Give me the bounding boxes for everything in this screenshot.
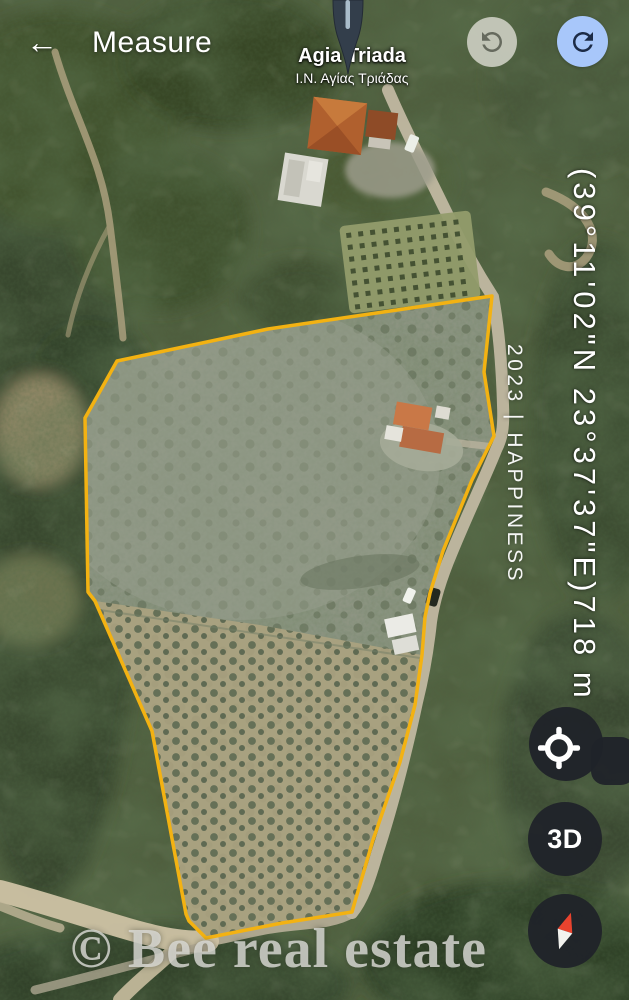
my-location-icon bbox=[537, 726, 581, 770]
vineyard bbox=[339, 210, 481, 313]
undo-button[interactable] bbox=[467, 17, 517, 67]
my-location-button[interactable] bbox=[529, 707, 603, 781]
back-arrow-icon: ← bbox=[26, 24, 58, 60]
redo-icon bbox=[568, 27, 598, 57]
undo-icon bbox=[477, 27, 507, 57]
page-title: Measure bbox=[92, 26, 212, 60]
measure-screen: ← Measure Agia Triada Ι.Ν. Αγίας Τριάδας… bbox=[0, 0, 629, 1000]
redo-button[interactable] bbox=[557, 16, 608, 67]
3d-label: 3D bbox=[547, 824, 583, 855]
back-button[interactable]: ← bbox=[22, 22, 62, 62]
3d-view-button[interactable]: 3D bbox=[528, 802, 602, 876]
compass-icon bbox=[542, 908, 588, 954]
compass-button[interactable] bbox=[528, 894, 602, 968]
measure-pin-icon bbox=[330, 0, 366, 78]
